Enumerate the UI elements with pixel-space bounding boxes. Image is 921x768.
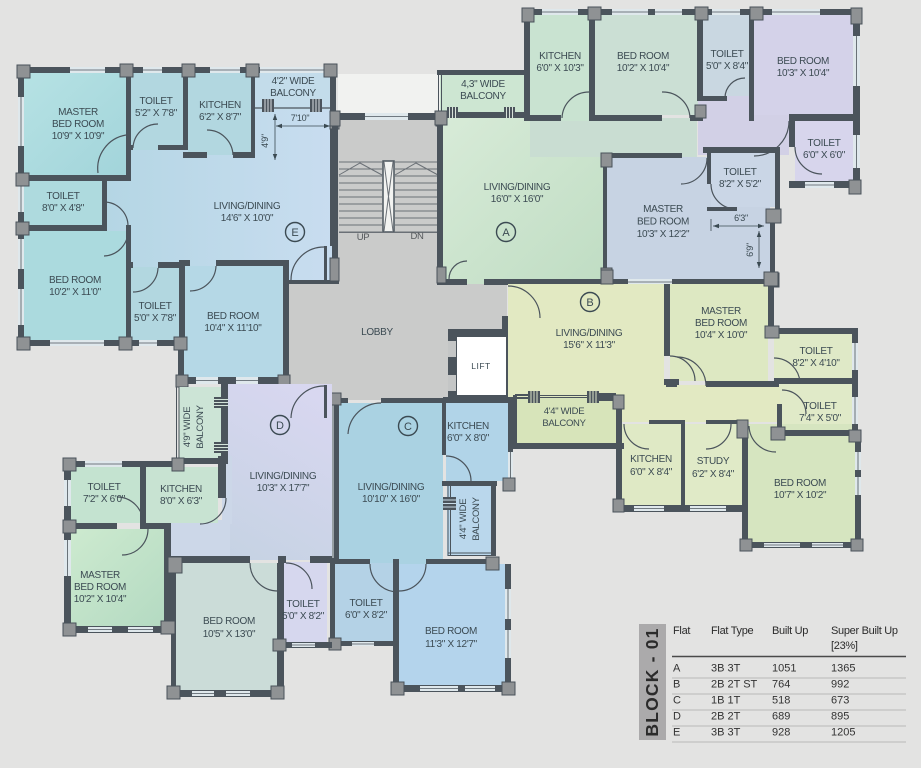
svg-text:TOILET5'0" X 7'8": TOILET5'0" X 7'8" (134, 301, 177, 324)
svg-text:E: E (291, 227, 298, 239)
svg-text:895: 895 (831, 711, 849, 723)
svg-text:LIVING/DINING16'0" X 16'0": LIVING/DINING16'0" X 16'0" (484, 182, 551, 205)
svg-text:B: B (673, 679, 680, 691)
svg-text:LIFT: LIFT (471, 361, 490, 371)
svg-text:Flat Type: Flat Type (711, 625, 754, 637)
svg-text:3B 3T: 3B 3T (711, 663, 741, 675)
svg-text:A: A (502, 227, 510, 239)
svg-text:TOILET7'2" X 6'0": TOILET7'2" X 6'0" (83, 482, 126, 505)
svg-text:D: D (673, 711, 681, 723)
svg-text:C: C (673, 695, 681, 707)
svg-text:1205: 1205 (831, 727, 855, 739)
svg-text:BED ROOM10'2" X 11'0": BED ROOM10'2" X 11'0" (49, 275, 102, 298)
svg-text:992: 992 (831, 679, 849, 691)
svg-text:LOBBY: LOBBY (361, 327, 393, 338)
svg-text:KITCHEN6'0" X 10'3": KITCHEN6'0" X 10'3" (536, 51, 584, 74)
svg-text:689: 689 (772, 711, 790, 723)
svg-text:BED ROOM10'7" X 10'2": BED ROOM10'7" X 10'2" (774, 478, 827, 501)
svg-text:BALCONY: BALCONY (471, 496, 482, 540)
svg-text:518: 518 (772, 695, 790, 707)
svg-text:LIVING/DINING10'3" X 17'7": LIVING/DINING10'3" X 17'7" (250, 471, 317, 494)
svg-text:764: 764 (772, 679, 790, 691)
svg-text:KITCHEN8'0" X 6'3": KITCHEN8'0" X 6'3" (160, 484, 203, 507)
svg-text:TOILET5'2" X 7'8": TOILET5'2" X 7'8" (135, 96, 178, 119)
svg-text:LIVING/DINING10'10" X 16'0": LIVING/DINING10'10" X 16'0" (358, 482, 425, 505)
svg-text:BALCONY: BALCONY (195, 404, 206, 448)
svg-text:KITCHEN6'0" X 8'0": KITCHEN6'0" X 8'0" (447, 421, 490, 444)
svg-text:TOILET7'4" X 5'0": TOILET7'4" X 5'0" (799, 401, 842, 424)
svg-text:BED ROOM10'4" X 11'10": BED ROOM10'4" X 11'10" (204, 311, 262, 334)
svg-text:TOILET5'0" X 8'2": TOILET5'0" X 8'2" (282, 599, 325, 622)
svg-text:KITCHEN6'2" X 8'7": KITCHEN6'2" X 8'7" (199, 100, 242, 123)
svg-text:1365: 1365 (831, 663, 855, 675)
svg-text:LIVING/DINING14'6" X 10'0": LIVING/DINING14'6" X 10'0" (214, 201, 281, 224)
svg-text:1051: 1051 (772, 663, 796, 675)
svg-text:MASTERBED ROOM10'2" X 10'4": MASTERBED ROOM10'2" X 10'4" (74, 570, 127, 605)
svg-text:MASTERBED ROOM10'3" X 12'2": MASTERBED ROOM10'3" X 12'2" (637, 204, 690, 240)
svg-text:7'10": 7'10" (291, 113, 310, 123)
svg-text:TOILET6'0" X 6'0": TOILET6'0" X 6'0" (803, 138, 846, 161)
svg-text:UP: UP (357, 232, 370, 243)
svg-text:4'9": 4'9" (260, 134, 270, 148)
svg-text:BED ROOM10'2" X 10'4": BED ROOM10'2" X 10'4" (617, 51, 670, 74)
svg-text:928: 928 (772, 727, 790, 739)
svg-text:TOILET8'0" X 4'8": TOILET8'0" X 4'8" (42, 191, 85, 214)
svg-text:2B 2T: 2B 2T (711, 711, 741, 723)
svg-text:TOILET8'2" X 5'2": TOILET8'2" X 5'2" (719, 167, 762, 190)
svg-text:Built Up: Built Up (772, 625, 808, 637)
svg-text:D: D (276, 420, 284, 432)
svg-text:Flat: Flat (673, 625, 690, 637)
svg-text:LIVING/DINING15'6" X 11'3": LIVING/DINING15'6" X 11'3" (556, 328, 623, 351)
svg-text:E: E (673, 727, 680, 739)
svg-text:BLOCK - 01: BLOCK - 01 (642, 627, 662, 736)
svg-text:TOILET6'0" X 8'2": TOILET6'0" X 8'2" (345, 598, 388, 621)
svg-text:B: B (586, 297, 593, 309)
svg-text:C: C (404, 421, 412, 433)
svg-text:DN: DN (410, 231, 424, 242)
svg-text:TOILET5'0" X 8'4": TOILET5'0" X 8'4" (706, 49, 749, 72)
svg-text:3B 3T: 3B 3T (711, 727, 741, 739)
svg-text:4'4" WIDE: 4'4" WIDE (458, 499, 469, 540)
svg-text:6'9": 6'9" (745, 243, 755, 257)
svg-text:4,3" WIDEBALCONY: 4,3" WIDEBALCONY (460, 79, 506, 102)
svg-text:4'9" WIDE: 4'9" WIDE (182, 407, 193, 448)
svg-text:6'3": 6'3" (734, 213, 748, 223)
svg-text:673: 673 (831, 695, 849, 707)
svg-text:1B 1T: 1B 1T (711, 695, 741, 707)
svg-text:MASTERBED ROOM10'4" X 10'0": MASTERBED ROOM10'4" X 10'0" (695, 306, 748, 341)
svg-text:MASTERBED ROOM10'9" X 10'9": MASTERBED ROOM10'9" X 10'9" (52, 107, 105, 142)
svg-text:4'4" WIDEBALCONY: 4'4" WIDEBALCONY (542, 406, 586, 429)
svg-text:A: A (673, 663, 681, 675)
svg-text:2B 2T ST: 2B 2T ST (711, 679, 758, 691)
svg-text:4'2" WIDEBALCONY: 4'2" WIDEBALCONY (270, 76, 316, 99)
svg-text:BED ROOM10'3" X 10'4": BED ROOM10'3" X 10'4" (777, 56, 830, 79)
